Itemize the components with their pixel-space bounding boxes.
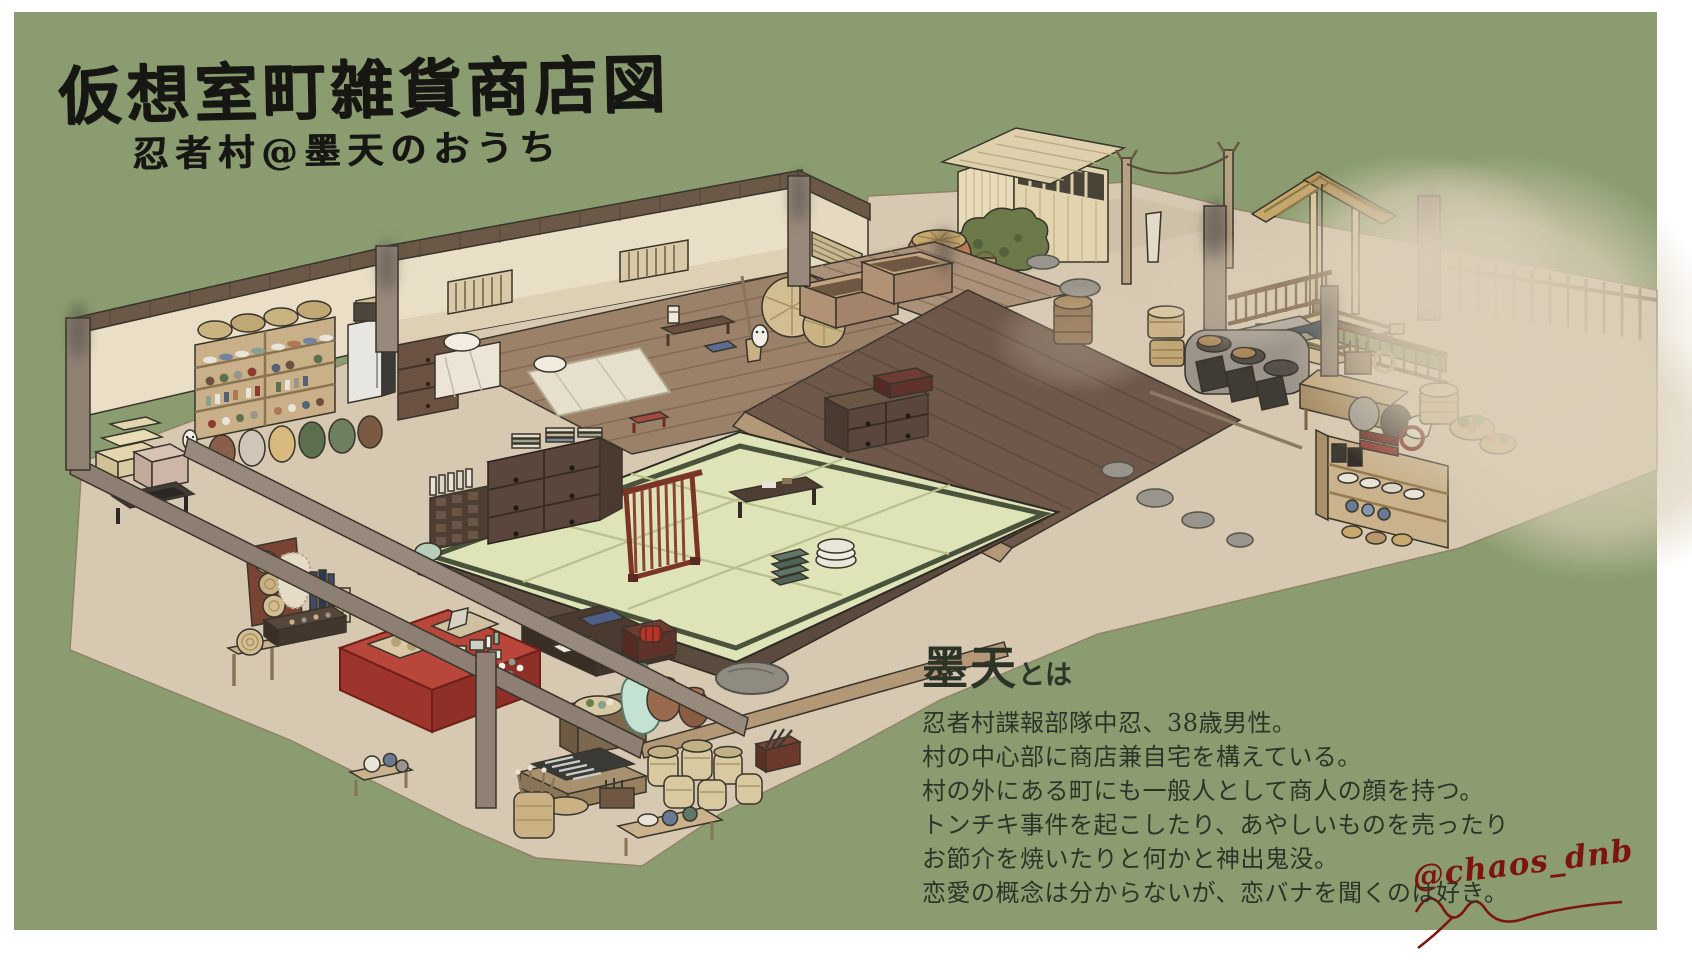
artwork-subtitle: 忍者村@墨天のおうち [132, 118, 563, 177]
profile-line: トンチキ事件を起こしたり、あやしいものを売ったり [922, 808, 1509, 842]
ghost-figure [752, 325, 768, 347]
red-lantern [640, 626, 662, 642]
profile-suffix: とは [1018, 660, 1072, 691]
hanging-cloth [1146, 212, 1161, 262]
profile-line: 村の外にある町にも一般人として商人の顔を持つ。 [922, 774, 1509, 808]
profile-heading: 墨天とは [922, 632, 1509, 698]
front-pillar [476, 652, 496, 808]
card-drawer-cabinet [430, 486, 488, 550]
profile-name: 墨天 [922, 641, 1018, 695]
profile-line: 村の中心部に商店兼自宅を構えている。 [922, 740, 1509, 774]
profile-line: 忍者村諜報部隊中忍、38歳男性。 [922, 706, 1509, 740]
garden-stone [716, 662, 788, 694]
artwork-page: 仮想室町雑貨商店図 忍者村@墨天のおうち 墨天とは 忍者村諜報部隊中忍、38歳男… [0, 0, 1692, 966]
lantern [668, 306, 679, 323]
towel-stack [816, 539, 856, 568]
cushion-stack [772, 549, 808, 585]
